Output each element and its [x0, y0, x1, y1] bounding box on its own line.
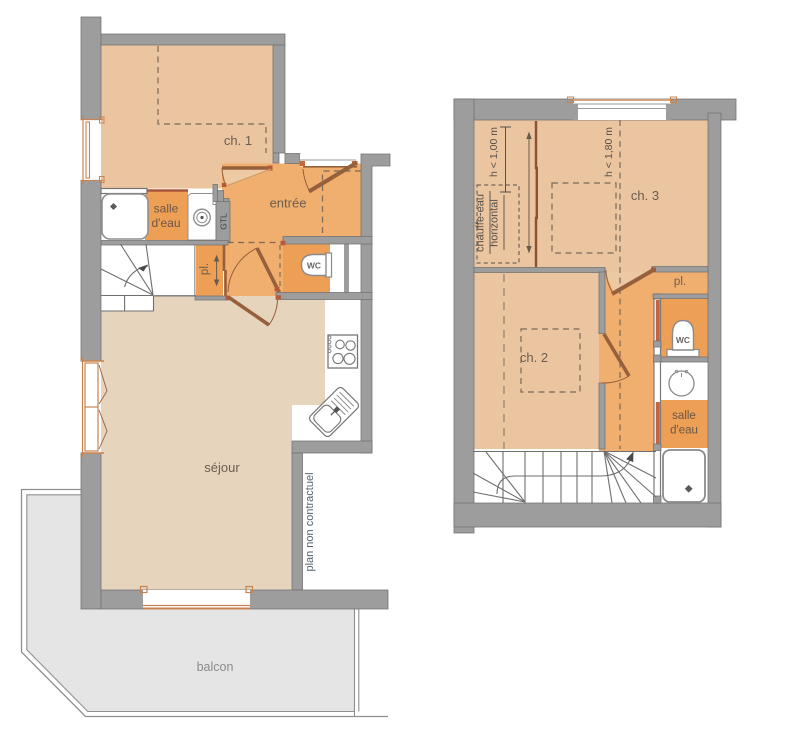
svg-text:h < 1,80 m: h < 1,80 m: [603, 127, 615, 177]
svg-text:plan non contractuel: plan non contractuel: [304, 472, 316, 571]
svg-text:ch. 2: ch. 2: [520, 350, 548, 365]
svg-text:d'eau: d'eau: [152, 216, 181, 230]
svg-text:séjour: séjour: [204, 460, 240, 475]
svg-text:chauffe-eau: chauffe-eau: [475, 194, 487, 252]
svg-text:h < 1,00 m: h < 1,00 m: [488, 127, 500, 177]
svg-text:GTL: GTL: [219, 213, 229, 230]
svg-text:pl.: pl.: [674, 276, 686, 288]
svg-text:salle: salle: [672, 410, 696, 422]
svg-text:WC: WC: [676, 335, 690, 345]
svg-text:balcon: balcon: [197, 660, 234, 674]
svg-text:entrée: entrée: [270, 196, 307, 211]
svg-text:d'eau: d'eau: [670, 425, 698, 437]
svg-text:ch. 1: ch. 1: [224, 133, 252, 148]
svg-text:pl.: pl.: [199, 263, 211, 275]
svg-text:ch. 3: ch. 3: [631, 188, 659, 203]
svg-text:salle: salle: [154, 202, 179, 216]
svg-text:WC: WC: [307, 261, 321, 271]
